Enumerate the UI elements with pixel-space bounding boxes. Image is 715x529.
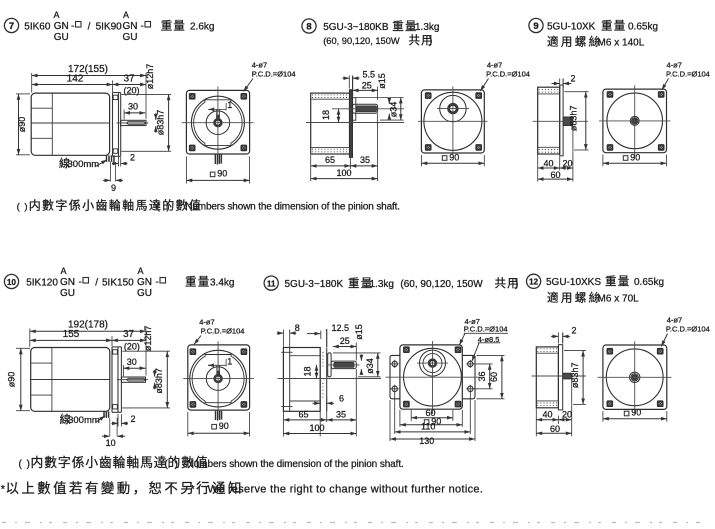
svg-text:): ) [429,36,432,47]
svg-text:4-ø7: 4-ø7 [667,315,682,324]
svg-text:37: 37 [123,329,135,340]
svg-text:0.65kg: 0.65kg [628,22,658,33]
svg-text:18: 18 [302,366,312,376]
svg-text:GU: GU [60,288,75,299]
svg-text:: M6 x 70L: : M6 x 70L [592,294,639,305]
svg-text:P.C.D.=Ø104: P.C.D.=Ø104 [666,325,710,334]
svg-text:4-ø7: 4-ø7 [667,61,682,70]
svg-text:142: 142 [67,73,84,84]
svg-text:2.6kg: 2.6kg [190,22,214,33]
svg-text:10: 10 [7,278,16,287]
svg-text:300mm: 300mm [68,159,100,170]
svg-text:5IK60: 5IK60 [24,22,51,33]
svg-text:重量: 重量 [601,19,626,33]
svg-text:90: 90 [217,169,227,179]
svg-text:130: 130 [419,436,434,446]
svg-text:4-ø7: 4-ø7 [487,61,502,70]
svg-text:65: 65 [298,410,308,420]
svg-text:40: 40 [542,410,552,420]
svg-text:25: 25 [362,80,372,90]
svg-text:2: 2 [572,326,577,336]
svg-text:9: 9 [533,21,538,32]
svg-text:1.3kg: 1.3kg [415,22,439,33]
svg-text:GN: GN [123,21,138,32]
svg-text:( ): ( ) [157,201,172,212]
svg-text:60: 60 [550,424,560,434]
svg-text:/: / [88,22,91,33]
svg-text:20: 20 [562,158,572,168]
svg-text:2: 2 [130,153,135,163]
svg-text:( ): ( ) [19,459,31,470]
svg-text:重量: 重量 [185,275,210,289]
svg-text:5GU-10XK: 5GU-10XK [547,22,596,33]
svg-text:A: A [137,266,143,276]
svg-text:GN: GN [54,21,69,32]
svg-text:1.3kg: 1.3kg [370,279,394,290]
svg-text:10: 10 [106,438,116,448]
svg-text:GN: GN [60,277,75,288]
svg-text:40: 40 [543,158,553,168]
svg-text:5.5: 5.5 [363,69,376,79]
svg-text:ø83h7: ø83h7 [569,106,579,132]
svg-text:12.5: 12.5 [332,323,350,333]
svg-text:155: 155 [63,329,80,340]
svg-text:90: 90 [219,421,229,431]
svg-text:ø90: ø90 [7,372,17,388]
svg-text:90: 90 [630,152,640,162]
svg-text:A: A [60,266,66,276]
svg-text:2: 2 [131,414,136,424]
svg-text:36: 36 [477,371,487,381]
svg-text:P.C.D.=Ø104: P.C.D.=Ø104 [252,70,296,79]
svg-text:60: 60 [550,170,560,180]
svg-text:20: 20 [562,410,572,420]
svg-text:35: 35 [360,155,370,165]
svg-text:GN: GN [137,277,152,288]
svg-text:7: 7 [9,21,14,32]
svg-text:110: 110 [421,422,435,432]
svg-text:ø15: ø15 [377,73,387,89]
svg-text:ø34: ø34 [365,358,375,374]
svg-text:GU: GU [54,32,69,43]
svg-text:30: 30 [128,102,138,112]
svg-text:18: 18 [321,110,331,120]
svg-text:5IK90: 5IK90 [96,22,123,33]
svg-text:-: - [141,21,144,32]
svg-text:ø83h7: ø83h7 [155,110,165,136]
svg-text:GU: GU [123,32,138,43]
svg-text:-: - [156,277,159,288]
svg-text:37: 37 [123,73,135,84]
svg-text:9: 9 [111,183,116,193]
svg-text:300mm: 300mm [68,415,100,426]
svg-text:(60, 90,120, 150W: (60, 90,120, 150W [323,36,400,46]
svg-text:6: 6 [339,393,344,403]
svg-text:P.C.D.=Ø104: P.C.D.=Ø104 [464,324,508,333]
svg-text:5GU-3~180KB: 5GU-3~180KB [323,22,389,33]
svg-text:P.C.D.=Ø104: P.C.D.=Ø104 [201,326,245,335]
svg-text:100: 100 [336,168,351,178]
svg-text:8: 8 [295,323,300,333]
svg-text:11: 11 [267,280,276,289]
svg-text:100: 100 [309,423,324,433]
svg-text:-: - [79,277,82,288]
svg-text:( ): ( ) [165,459,180,470]
svg-text:ø12h7: ø12h7 [145,64,155,90]
svg-text:ø90: ø90 [17,117,27,133]
svg-text:65: 65 [325,155,335,165]
svg-text:A: A [123,10,129,20]
svg-text:ø15: ø15 [354,324,364,340]
svg-text:5GU-10XKS: 5GU-10XKS [546,277,601,288]
svg-text:1: 1 [227,100,232,110]
svg-text:(60, 90,120, 150W: (60, 90,120, 150W [400,279,483,290]
svg-text:1: 1 [227,356,232,366]
svg-text:0.65kg: 0.65kg [634,277,664,288]
svg-text:ø83h7: ø83h7 [154,368,164,394]
svg-text:P.C.D.=Ø104: P.C.D.=Ø104 [666,70,710,79]
svg-text:We reserve the right to change: We reserve the right to change without f… [208,483,484,495]
svg-text:GU: GU [137,288,152,299]
svg-text:: M6 x 140L: : M6 x 140L [592,37,645,48]
svg-text:内數字係小齒輪軸馬達的數值: 内數字係小齒輪軸馬達的數值 [29,198,203,213]
svg-text:-: - [71,21,74,32]
svg-text:90: 90 [449,152,459,162]
svg-text:内數字係小齒輪軸馬達的數值: 内數字係小齒輪軸馬達的數值 [31,455,209,470]
svg-text:重量: 重量 [605,274,630,288]
svg-text:4-ø7: 4-ø7 [199,317,214,326]
svg-text:25: 25 [340,336,350,346]
svg-text:): ) [515,279,518,290]
svg-text:重量: 重量 [392,19,417,33]
svg-text:12: 12 [529,278,538,287]
svg-text:5IK150: 5IK150 [102,278,134,289]
svg-text:(20): (20) [124,341,140,351]
svg-text:ø34: ø34 [388,102,398,118]
svg-text:35: 35 [336,410,346,420]
svg-text:3.4kg: 3.4kg [210,278,234,289]
svg-text:( ): ( ) [17,201,29,212]
svg-text:重量: 重量 [161,19,186,33]
svg-text:Numbers shown the dimension of: Numbers shown the dimension of the pinio… [185,201,400,212]
svg-text:P.C.D.=Ø104: P.C.D.=Ø104 [486,70,530,79]
svg-text:ø12h7: ø12h7 [143,326,153,352]
svg-text:90: 90 [631,408,641,418]
svg-text:4-ø7: 4-ø7 [252,61,267,70]
svg-text:5IK120: 5IK120 [26,278,58,289]
svg-text:/: / [95,278,98,289]
svg-text:8: 8 [306,21,311,32]
svg-text:A: A [53,10,59,20]
svg-text:2: 2 [571,74,576,84]
svg-text:30: 30 [127,357,137,367]
svg-text:60: 60 [489,372,499,382]
svg-text:*: * [191,483,196,495]
svg-text:Numbers shown the dimension of: Numbers shown the dimension of the pinio… [187,459,404,470]
svg-text:5GU-3~180K: 5GU-3~180K [285,279,344,290]
